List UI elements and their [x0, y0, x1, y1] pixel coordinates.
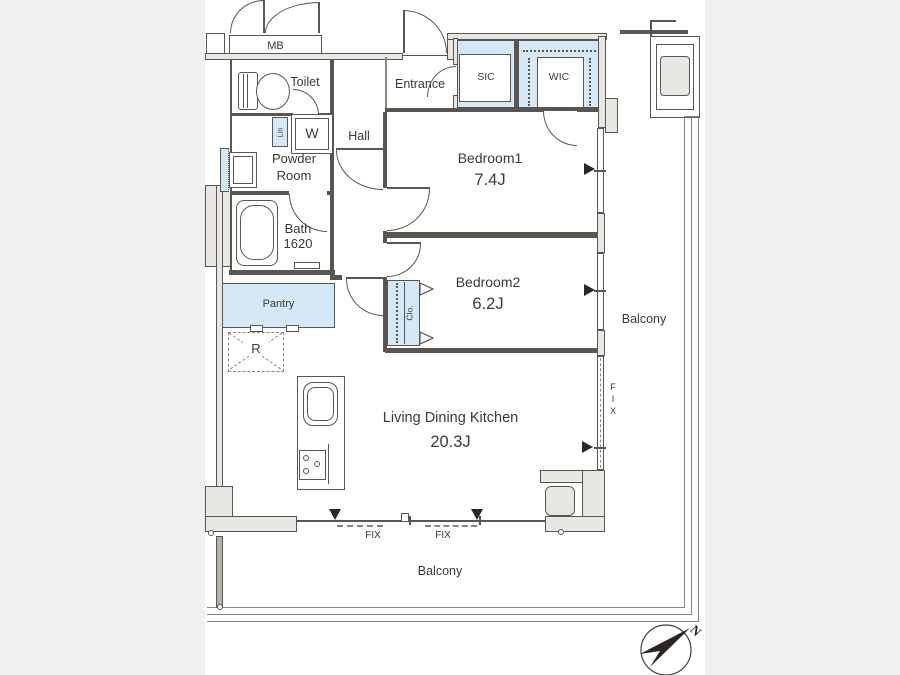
entrance-step-line: [385, 57, 387, 108]
powder-room-label: Powder Room: [254, 150, 334, 184]
wall: [385, 108, 543, 112]
hall-label: Hall: [336, 129, 382, 143]
north-label: N: [687, 622, 705, 640]
ldk-label: Living Dining Kitchen: [348, 410, 553, 426]
stove-burner: [303, 468, 309, 474]
balcony-railing: [207, 621, 699, 622]
ldk-size-label: 20.3J: [348, 433, 553, 452]
fix-bottom-label-1: FIX: [356, 530, 390, 541]
drain-symbol: [208, 530, 214, 536]
balcony-railing: [207, 607, 685, 608]
vanity-bowl: [233, 156, 253, 184]
entrance-door-sill: [403, 55, 447, 56]
fix-bottom-label-2: FIX: [426, 530, 460, 541]
wall: [385, 348, 597, 353]
bath-size-label: 1620: [268, 236, 328, 251]
walkin-closet-label: WIC: [518, 71, 600, 83]
bedroom2-label: Bedroom2: [418, 274, 558, 290]
wall: [330, 275, 342, 280]
wall: [327, 191, 334, 195]
balcony-railing: [684, 117, 685, 608]
fix-right-label: FIX: [608, 382, 618, 418]
wall: [229, 270, 335, 275]
wall: [577, 108, 600, 112]
kitchen-sink-inner: [307, 387, 334, 421]
fix-window-dash: [600, 358, 601, 468]
balcony-right-label: Balcony: [608, 312, 680, 326]
pantry-label: Pantry: [222, 298, 335, 310]
compass: N: [632, 614, 708, 675]
closet-label: Clo.: [405, 305, 415, 320]
wall-right: [597, 213, 605, 253]
wic-hanger-pipe: [523, 50, 596, 52]
fix-right-label-wrap: FIX: [606, 378, 620, 422]
fix-window-dash: [425, 525, 477, 527]
service-shaft-unit: [660, 56, 690, 96]
toilet-label: Toilet: [276, 75, 334, 89]
wall: [383, 112, 387, 188]
closet-door-marker: [419, 281, 435, 297]
pantry-door-tab: [286, 325, 299, 332]
bedroom1-size-label: 7.4J: [420, 171, 560, 190]
window-sill-line: [297, 520, 545, 522]
pantry-door-tab: [250, 325, 263, 332]
powder-side-cabinet: [220, 148, 229, 192]
bath-threshold: [294, 262, 320, 269]
shaft-line: [650, 20, 652, 36]
wall: [230, 191, 289, 195]
window-tick: [594, 290, 606, 292]
wall-left: [216, 185, 223, 518]
window-marker: [584, 284, 595, 296]
wall-notch: [605, 98, 618, 133]
shaft-wall-bar: [620, 30, 688, 34]
meter-box-label: MB: [229, 40, 322, 52]
balcony-partition: [216, 536, 223, 608]
counter-line: [328, 444, 329, 484]
toilet-tank-line: [243, 74, 244, 108]
wall: [232, 113, 293, 116]
wall-bottom: [205, 516, 297, 532]
window-tick: [409, 516, 411, 525]
pillar: [545, 486, 575, 516]
floorplan-canvas: MB Toilet Lin W Powder Room Bath 1620 En…: [0, 0, 900, 675]
balcony-railing: [698, 117, 699, 622]
stove-burner: [314, 461, 320, 467]
bath-label: Bath: [268, 221, 328, 236]
closet-door-marker: [419, 330, 435, 346]
balcony-railing: [691, 117, 692, 615]
stove: [299, 450, 326, 480]
balcony-railing: [207, 614, 692, 615]
window-marker: [584, 163, 595, 175]
drain-symbol: [558, 529, 564, 535]
window-marker: [582, 441, 593, 453]
bedroom2-size-label: 6.2J: [418, 295, 558, 314]
toilet-tank-line: [247, 74, 248, 108]
bedroom1-label: Bedroom1: [420, 150, 560, 166]
wall-right: [597, 330, 605, 356]
shoe-closet-label: SIC: [457, 71, 515, 83]
linen-label: Lin: [275, 127, 284, 137]
window-marker: [329, 509, 341, 520]
window-marker: [471, 509, 483, 520]
washer-label: W: [295, 125, 329, 141]
shaft-line: [650, 20, 676, 22]
wall-bottom: [545, 516, 605, 532]
balcony-railing: [684, 116, 699, 117]
balcony-bottom-label: Balcony: [400, 564, 480, 578]
window-tick: [594, 447, 606, 449]
closet-label-wrap: Clo.: [400, 280, 420, 346]
entrance-door-leaf: [403, 10, 405, 53]
window-tick: [594, 170, 606, 172]
drain-symbol: [217, 604, 223, 610]
fix-window-dash: [337, 525, 383, 527]
wall-bedroom-divider: [385, 232, 597, 238]
wall: [205, 53, 403, 60]
window-mullion: [401, 513, 409, 522]
meter-box-door-leaf: [318, 2, 320, 33]
linen-closet: Lin: [272, 117, 288, 147]
toilet-tank: [238, 72, 258, 110]
closet-dash-line: [396, 283, 398, 343]
refrigerator-label: R: [243, 341, 269, 356]
stove-burner: [303, 455, 309, 461]
corridor-notch: [206, 33, 225, 54]
wall: [447, 33, 607, 40]
